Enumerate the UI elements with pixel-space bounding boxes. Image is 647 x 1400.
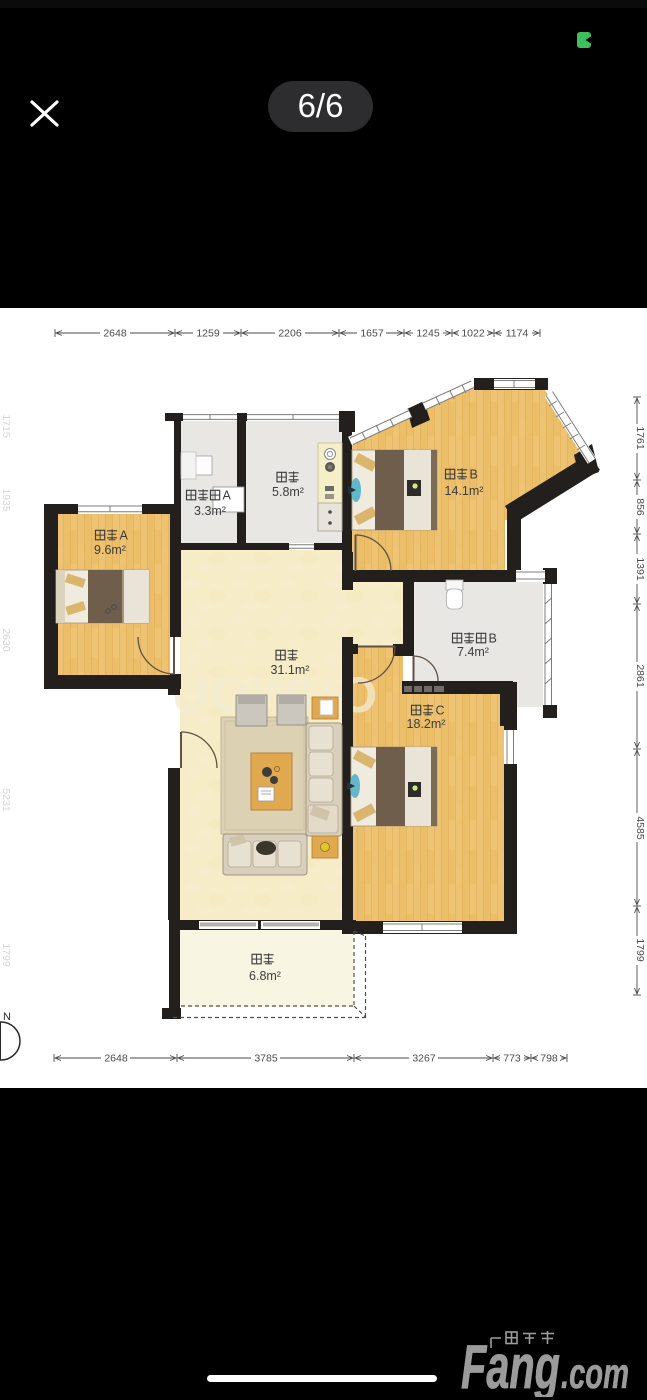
svg-text:2206: 2206 xyxy=(278,328,302,340)
svg-text:A: A xyxy=(120,529,129,543)
svg-text:4585: 4585 xyxy=(634,816,646,840)
svg-text:A: A xyxy=(223,489,232,503)
svg-text:1799: 1799 xyxy=(634,938,646,962)
svg-text:3785: 3785 xyxy=(254,1053,278,1065)
svg-text:B: B xyxy=(489,632,497,646)
svg-text:856: 856 xyxy=(634,498,646,516)
svg-text:2630: 2630 xyxy=(0,628,12,652)
svg-text:1799: 1799 xyxy=(0,943,12,967)
svg-text:5231: 5231 xyxy=(0,788,12,812)
svg-text:773: 773 xyxy=(503,1053,521,1065)
svg-text:N: N xyxy=(3,1011,11,1023)
svg-text:1657: 1657 xyxy=(360,328,384,340)
svg-text:5.8m²: 5.8m² xyxy=(272,485,304,499)
svg-text:1174: 1174 xyxy=(506,328,529,340)
svg-text:.com: .com xyxy=(561,1350,629,1397)
svg-text:1935: 1935 xyxy=(0,488,12,512)
svg-text:C: C xyxy=(436,704,445,718)
svg-text:6.8m²: 6.8m² xyxy=(249,969,281,983)
svg-text:9.6m²: 9.6m² xyxy=(94,543,126,557)
svg-text:18.2m²: 18.2m² xyxy=(407,717,446,731)
svg-text:7.4m²: 7.4m² xyxy=(457,645,489,659)
svg-text:3267: 3267 xyxy=(412,1053,436,1065)
svg-text:1715: 1715 xyxy=(0,414,12,438)
svg-text:1391: 1391 xyxy=(634,557,646,581)
svg-text:1761: 1761 xyxy=(634,426,646,450)
svg-text:31.1m²: 31.1m² xyxy=(271,663,310,677)
svg-text:Fang: Fang xyxy=(461,1333,560,1397)
svg-text:1259: 1259 xyxy=(196,328,220,340)
svg-text:798: 798 xyxy=(540,1053,558,1065)
svg-text:14.1m²: 14.1m² xyxy=(445,484,484,498)
svg-text:2861: 2861 xyxy=(634,664,646,688)
svg-text:B: B xyxy=(470,468,478,482)
svg-text:2648: 2648 xyxy=(104,1053,128,1065)
svg-text:1245: 1245 xyxy=(416,328,440,340)
svg-text:1022: 1022 xyxy=(461,328,485,340)
svg-text:3.3m²: 3.3m² xyxy=(194,504,226,518)
svg-text:2648: 2648 xyxy=(103,328,127,340)
